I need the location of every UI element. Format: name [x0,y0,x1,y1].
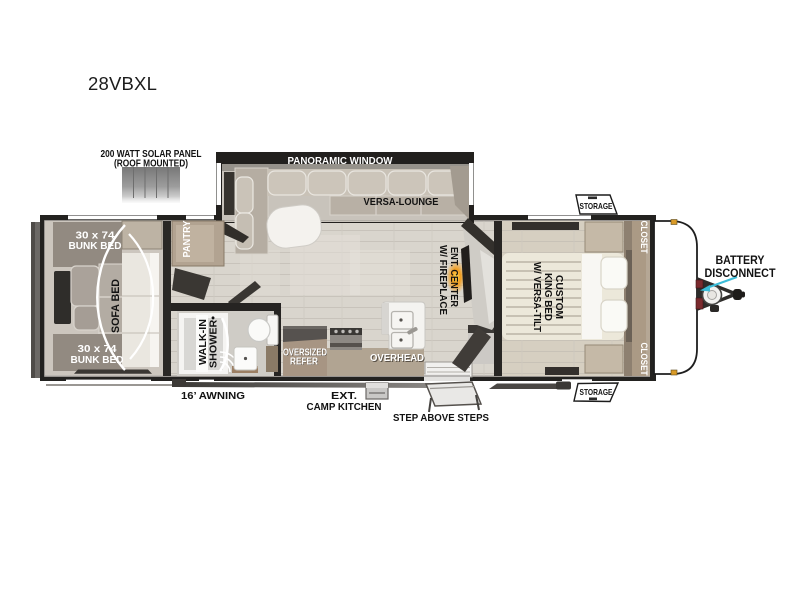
svg-text:W/ FIREPLACE: W/ FIREPLACE [437,245,449,315]
svg-text:28VBXL: 28VBXL [88,73,157,94]
svg-text:STORAGE: STORAGE [580,201,613,211]
svg-text:VERSA-LOUNGE: VERSA-LOUNGE [364,196,439,208]
svg-text:STORAGE: STORAGE [580,387,613,397]
svg-text:PANORAMIC WINDOW: PANORAMIC WINDOW [288,156,394,167]
svg-text:CAMP KITCHEN: CAMP KITCHEN [307,401,382,413]
svg-text:BATTERY: BATTERY [716,255,765,267]
svg-text:DISCONNECT: DISCONNECT [705,268,776,280]
svg-text:STEP ABOVE STEPS: STEP ABOVE STEPS [393,412,489,424]
svg-text:16’ AWNING: 16’ AWNING [181,390,245,402]
svg-text:SHOWER•: SHOWER• [208,316,220,368]
svg-text:OVERHEAD: OVERHEAD [370,352,424,364]
svg-text:SOFA BED: SOFA BED [110,279,122,333]
svg-text:REFER: REFER [290,357,319,368]
svg-text:W/ VERSA-TILT: W/ VERSA-TILT [531,262,543,333]
svg-text:BUNK BED: BUNK BED [71,354,124,366]
svg-text:CLOSET: CLOSET [639,221,649,254]
svg-text:PANTRY: PANTRY [181,221,193,258]
svg-text:CLOSET: CLOSET [639,343,649,376]
svg-text:BUNK BED: BUNK BED [69,240,122,252]
